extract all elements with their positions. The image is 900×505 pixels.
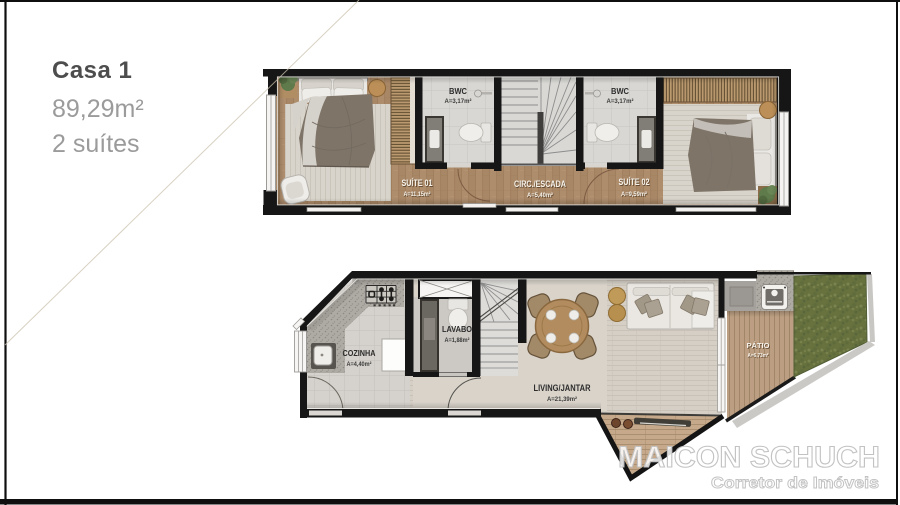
svg-text:A=4,40m²: A=4,40m² — [347, 361, 373, 368]
svg-text:A=3,17m²: A=3,17m² — [607, 98, 635, 105]
svg-text:A=21,39m²: A=21,39m² — [547, 396, 578, 403]
svg-text:SUÍTE 02: SUÍTE 02 — [619, 177, 650, 187]
svg-text:BWC: BWC — [449, 86, 467, 96]
svg-text:A=11,15m²: A=11,15m² — [404, 191, 432, 198]
svg-text:PÁTIO: PÁTIO — [747, 341, 770, 350]
svg-text:LIVING/JANTAR: LIVING/JANTAR — [534, 383, 591, 393]
svg-text:BWC: BWC — [611, 86, 629, 96]
svg-text:89,29m²: 89,29m² — [52, 95, 144, 123]
svg-text:CIRC./ESCADA: CIRC./ESCADA — [514, 179, 566, 189]
svg-text:2 suítes: 2 suítes — [52, 130, 140, 158]
svg-text:LAVABO: LAVABO — [442, 325, 472, 334]
svg-text:MAICON SCHUCH: MAICON SCHUCH — [618, 441, 880, 474]
svg-text:A=1,88m²: A=1,88m² — [445, 337, 471, 344]
svg-text:SUÍTE 01: SUÍTE 01 — [402, 178, 433, 188]
svg-text:A=9,59m²: A=9,59m² — [621, 191, 648, 198]
svg-text:Corretor de Imóveis: Corretor de Imóveis — [711, 475, 879, 492]
svg-text:COZINHA: COZINHA — [343, 348, 376, 358]
svg-text:A=6,73m²: A=6,73m² — [748, 352, 769, 359]
svg-text:A=3,17m²: A=3,17m² — [445, 98, 473, 105]
svg-text:Casa 1: Casa 1 — [52, 57, 132, 84]
svg-text:A=5,40m²: A=5,40m² — [527, 192, 554, 199]
